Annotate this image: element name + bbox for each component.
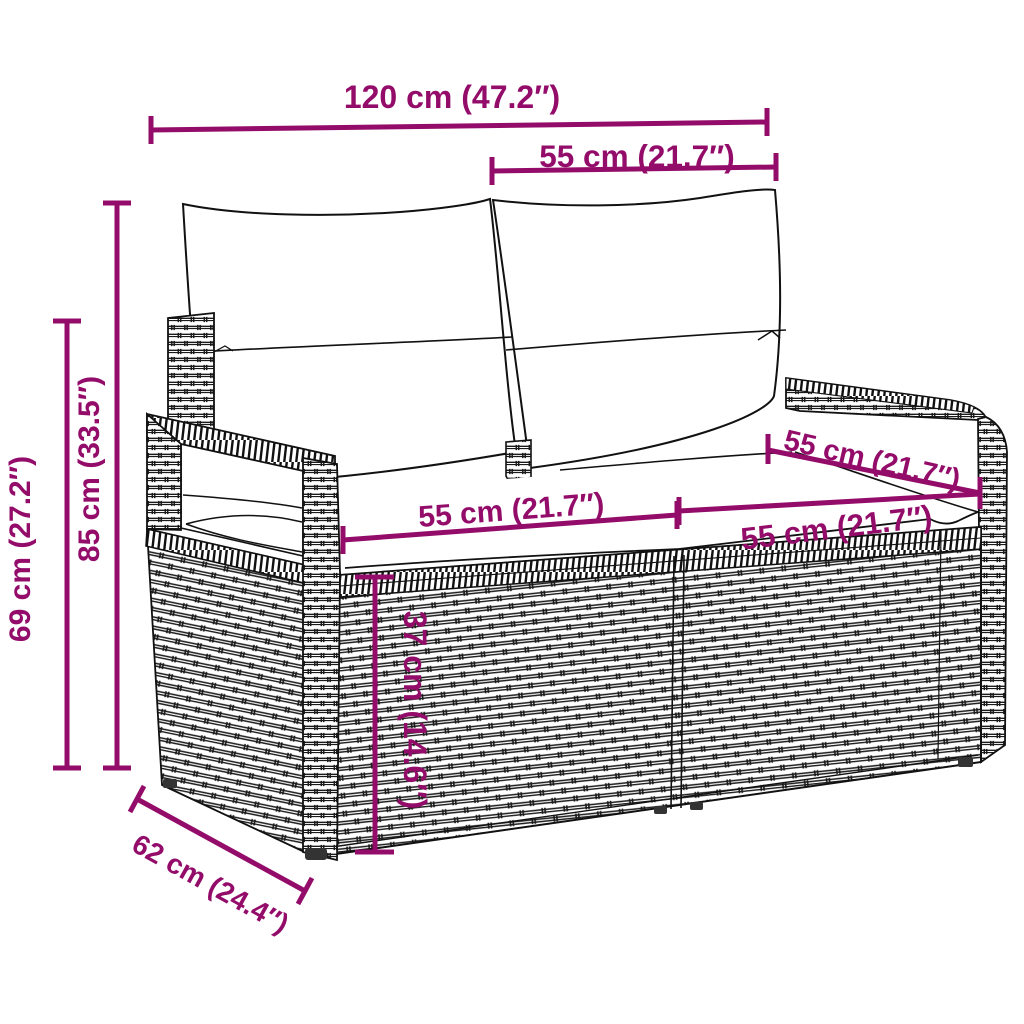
svg-text:37 cm (14.6″): 37 cm (14.6″) xyxy=(397,611,433,810)
svg-text:85 cm (33.5″): 85 cm (33.5″) xyxy=(73,376,106,562)
svg-text:69 cm (27.2″): 69 cm (27.2″) xyxy=(4,456,37,642)
svg-text:120 cm (47.2″): 120 cm (47.2″) xyxy=(344,79,560,115)
svg-text:55 cm (21.7″): 55 cm (21.7″) xyxy=(539,138,734,174)
